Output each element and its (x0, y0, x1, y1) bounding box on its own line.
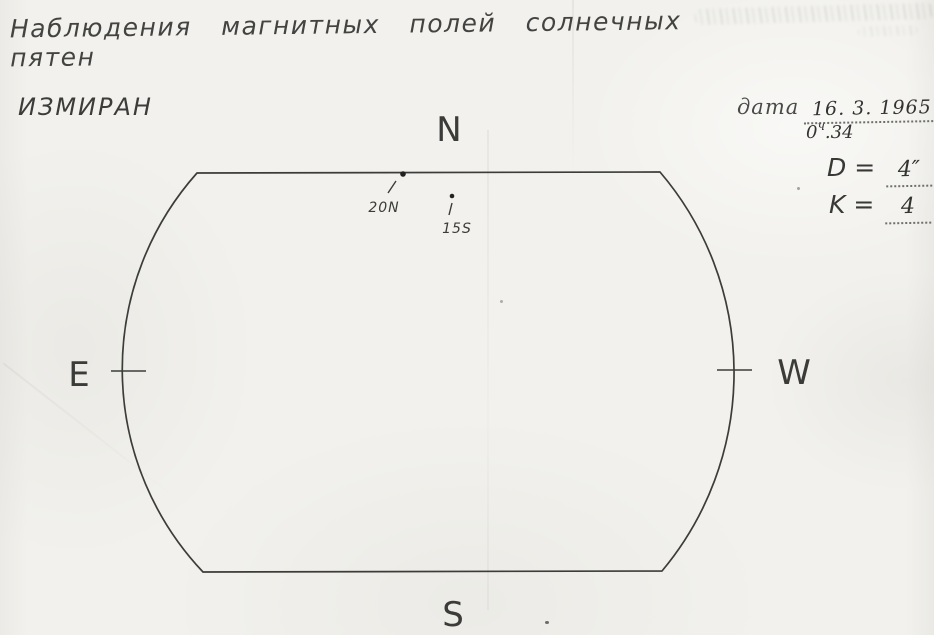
solar-disk-outline (122, 172, 734, 572)
sunspot-dot (400, 171, 406, 177)
west-label: W (777, 353, 811, 393)
sunspot-pointer (449, 203, 452, 215)
sunspot-label: 20N (368, 200, 399, 216)
sunspot-label: 15S (442, 221, 472, 237)
east-label: E (68, 355, 89, 395)
north-label: N (436, 110, 461, 150)
south-label: S (442, 595, 464, 635)
solar-disk-diagram: N S E W 20N 15S (0, 0, 934, 635)
scanned-observation-sheet: Наблюдения магнитных полей солнечных пят… (0, 0, 934, 635)
sunspot-pointer (388, 181, 396, 193)
sunspot-dot (450, 194, 455, 199)
